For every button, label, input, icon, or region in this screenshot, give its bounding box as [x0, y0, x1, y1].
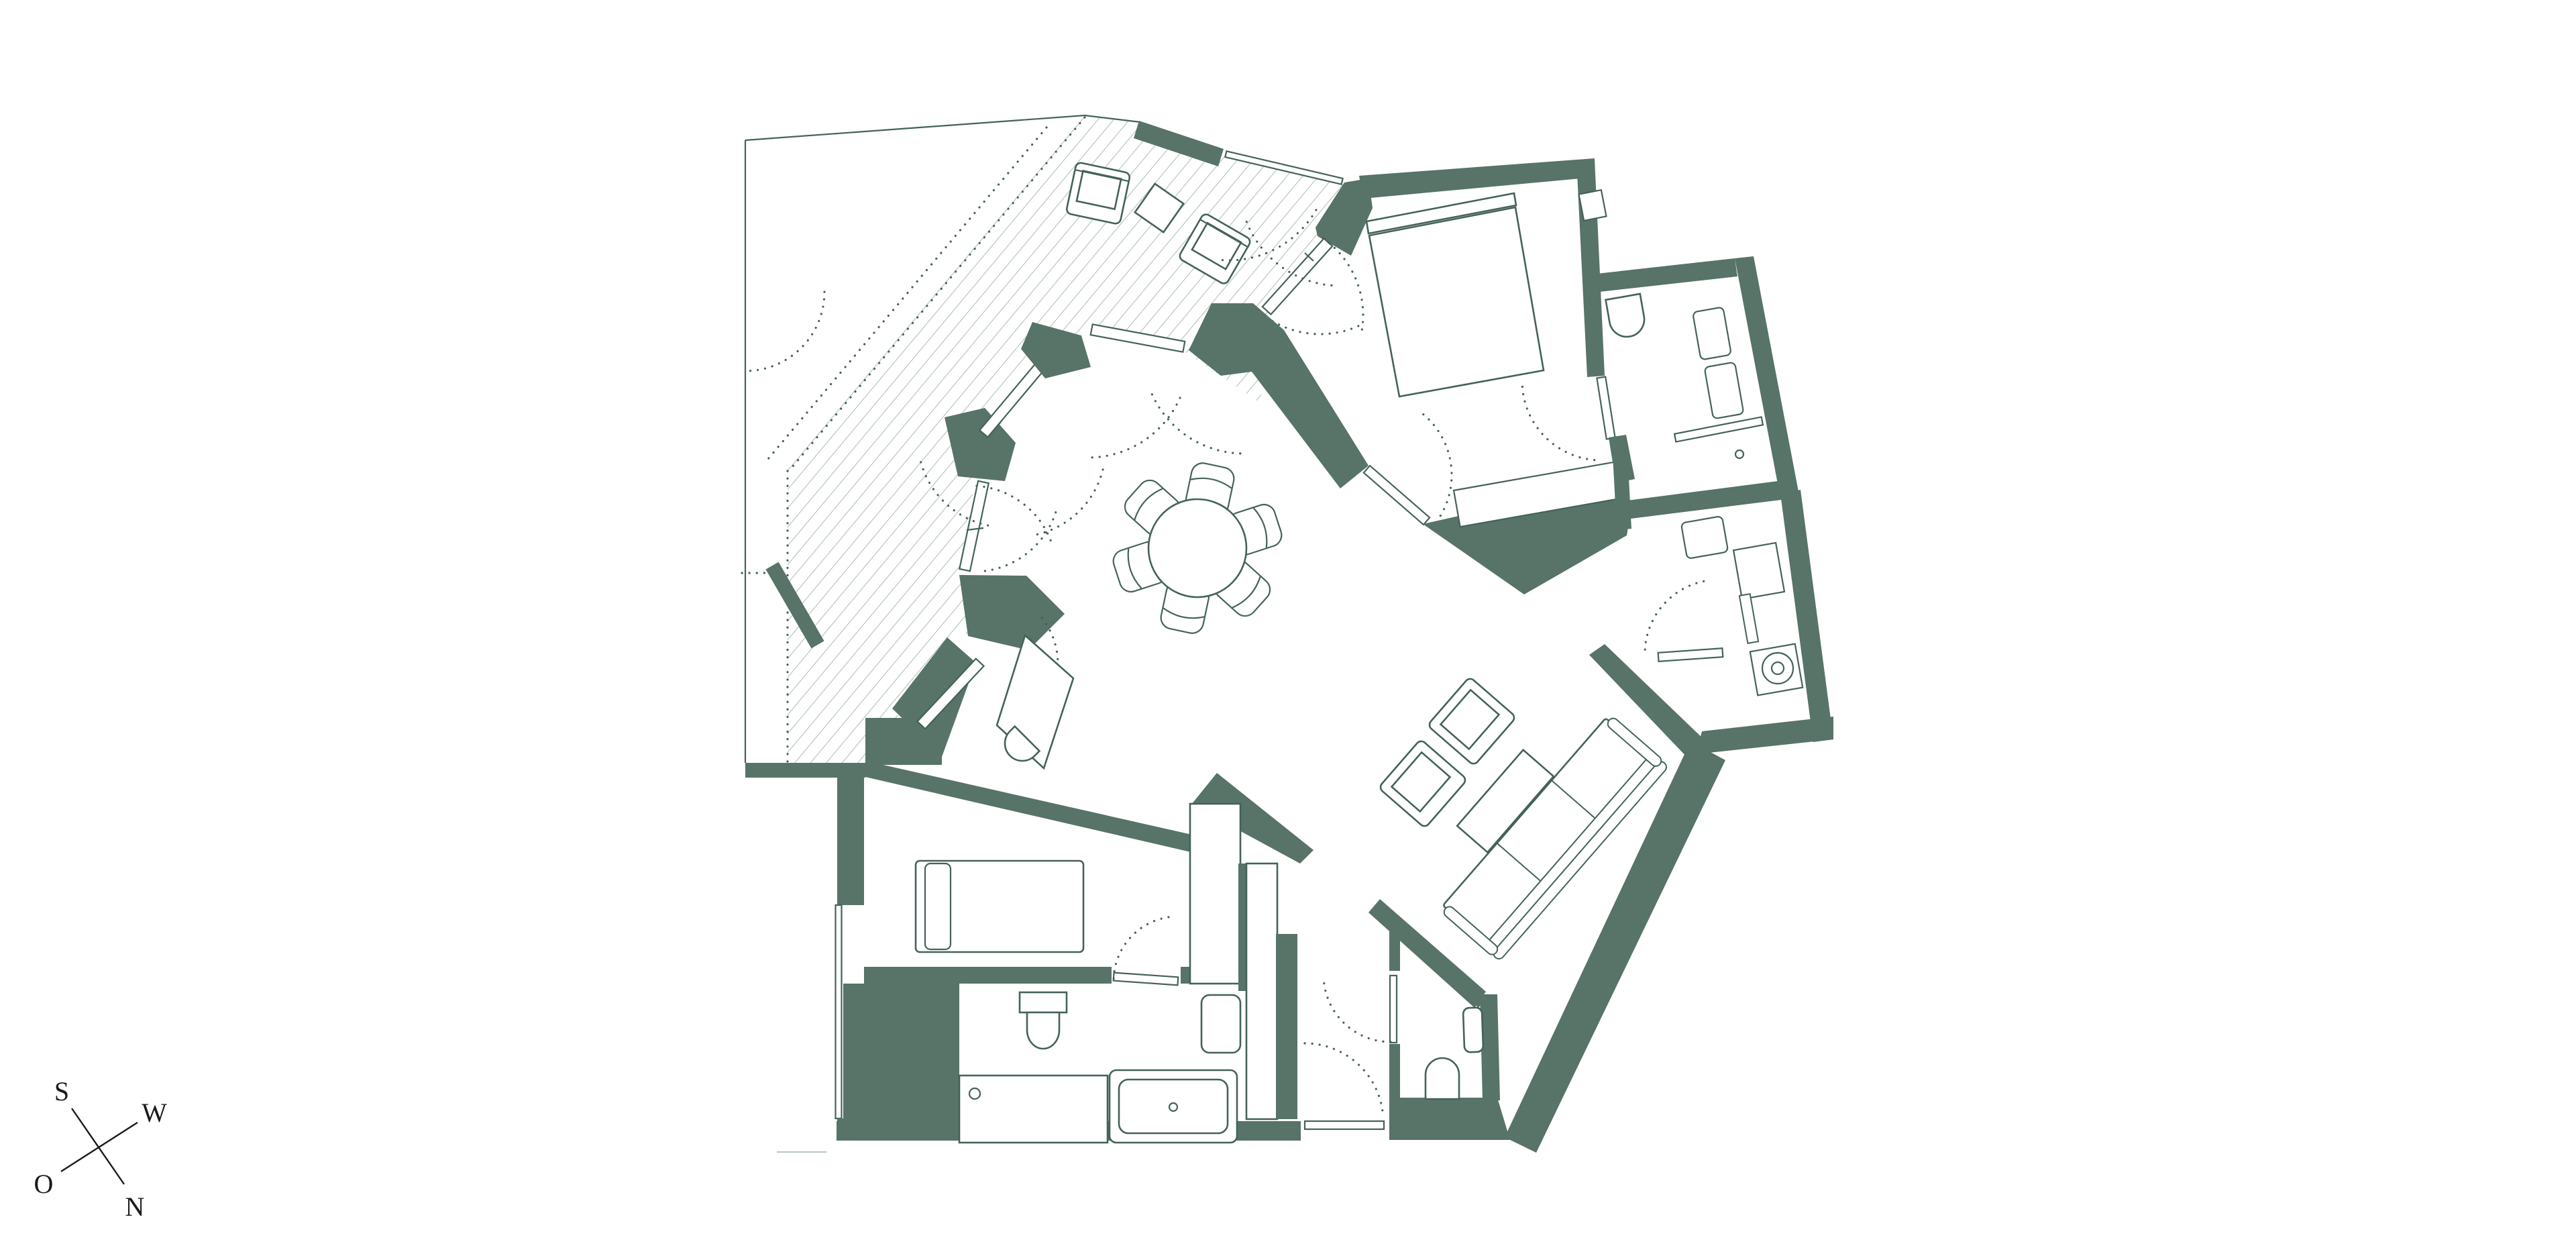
- svg-text:O: O: [34, 1169, 54, 1199]
- svg-text:N: N: [125, 1192, 145, 1222]
- svg-text:W: W: [142, 1098, 167, 1128]
- svg-text:S: S: [54, 1076, 69, 1106]
